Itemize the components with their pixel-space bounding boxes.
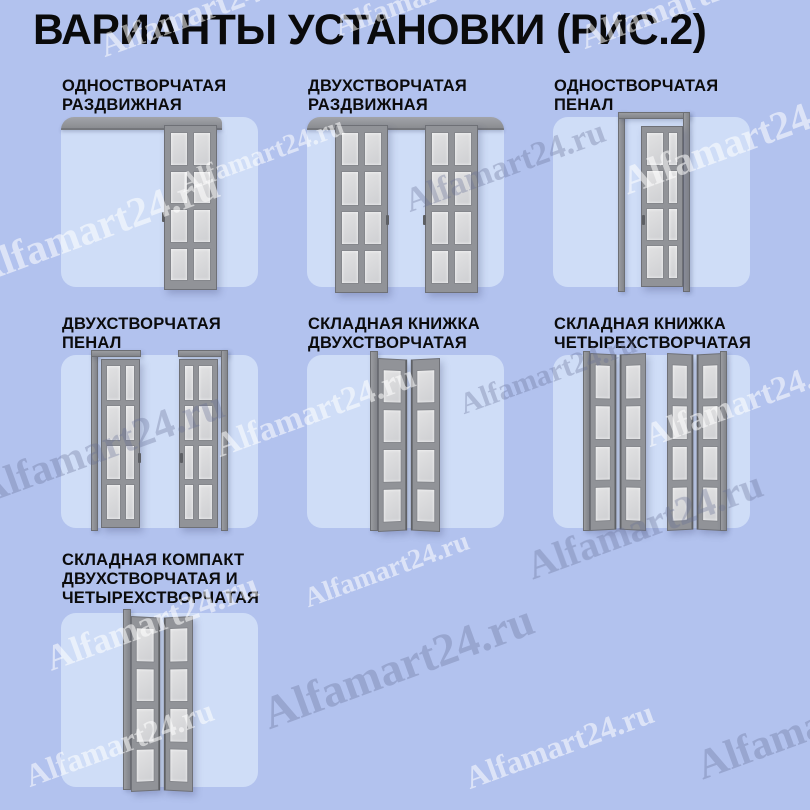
glass-pane xyxy=(595,446,611,481)
label-line: ДВУХСТВОРЧАТАЯ И xyxy=(62,570,259,589)
glass-pane xyxy=(169,748,188,783)
glass-pane xyxy=(431,171,449,205)
glass-pane xyxy=(646,170,664,204)
door-handle xyxy=(162,212,165,222)
door-leaf xyxy=(131,616,160,792)
glass-pane xyxy=(646,245,664,279)
glass-pane xyxy=(364,171,382,205)
page-title: ВАРИАНТЫ УСТАНОВКИ (РИС.2) xyxy=(33,6,706,55)
glass-pane xyxy=(416,409,435,443)
frame-post xyxy=(683,112,690,292)
glass-pane xyxy=(672,405,688,440)
glass-pane xyxy=(170,132,188,166)
glass-pane xyxy=(454,211,472,245)
glass-pane xyxy=(702,364,718,399)
glass-pane xyxy=(125,365,135,401)
door-leaf xyxy=(378,358,407,532)
glass-pane xyxy=(169,708,188,742)
glass-pane xyxy=(672,446,688,481)
bifold-pair xyxy=(378,358,440,532)
label-line: ДВУХСТВОРЧАТАЯ xyxy=(308,334,480,353)
door-leaf xyxy=(335,125,388,293)
watermark-text: Alfamart24.ru xyxy=(255,593,541,740)
glass-pane xyxy=(170,248,188,282)
glass-pane xyxy=(125,445,135,481)
bifold-pair xyxy=(667,353,723,531)
door-handle xyxy=(423,215,426,225)
label-double-sliding: ДВУХСТВОРЧАТАЯ РАЗДВИЖНАЯ xyxy=(308,77,467,115)
glass-pane xyxy=(125,484,135,520)
glass-pane xyxy=(702,405,718,440)
label-single-pocket: ОДНОСТВОРЧАТАЯ ПЕНАЛ xyxy=(554,77,718,115)
glass-pane xyxy=(431,250,449,284)
watermark-text: Alfamart24.ru xyxy=(300,526,474,615)
label-line: СКЛАДНАЯ КНИЖКА xyxy=(554,315,751,334)
frame-post xyxy=(370,351,378,531)
frame-post xyxy=(618,112,625,292)
glass-pane xyxy=(364,250,382,284)
glass-pane xyxy=(595,405,611,440)
glass-pane xyxy=(184,365,194,401)
door-illustration xyxy=(307,117,504,287)
glass-pane xyxy=(625,405,641,440)
glass-pane xyxy=(193,209,211,243)
frame-post xyxy=(123,609,131,790)
label-double-pocket: ДВУХСТВОРЧАТАЯ ПЕНАЛ xyxy=(62,315,221,353)
door-leaf xyxy=(667,353,693,531)
frame-post xyxy=(720,351,727,531)
glass-pane xyxy=(416,369,435,403)
glass-pane xyxy=(341,250,359,284)
glass-pane xyxy=(106,484,121,520)
panel-double-sliding xyxy=(307,117,504,287)
glass-pane xyxy=(625,486,641,521)
glass-pane xyxy=(169,668,188,702)
glass-pane xyxy=(383,369,402,403)
door-illustration xyxy=(307,355,504,528)
label-line: ОДНОСТВОРЧАТАЯ xyxy=(62,77,226,96)
glass-pane xyxy=(595,364,611,399)
door-illustration xyxy=(553,117,750,287)
label-line: СКЛАДНАЯ КОМПАКТ xyxy=(62,551,259,570)
frame-post xyxy=(91,350,98,531)
door-leaf xyxy=(590,353,616,531)
label-line: СКЛАДНАЯ КНИЖКА xyxy=(308,315,480,334)
glass-pane xyxy=(341,132,359,166)
glass-pane xyxy=(170,171,188,205)
glass-pane xyxy=(136,748,155,783)
glass-pane xyxy=(193,132,211,166)
label-folding-book-quad: СКЛАДНАЯ КНИЖКА ЧЕТЫРЕХСТВОРЧАТАЯ xyxy=(554,315,751,353)
glass-pane xyxy=(668,170,678,204)
glass-pane xyxy=(672,486,688,521)
door-illustration xyxy=(61,613,258,787)
glass-pane xyxy=(106,445,121,481)
glass-pane xyxy=(454,132,472,166)
glass-pane xyxy=(184,405,194,441)
glass-pane xyxy=(198,365,213,401)
glass-pane xyxy=(383,409,402,443)
glass-pane xyxy=(672,364,688,399)
door-handle xyxy=(386,215,389,225)
panel-single-sliding xyxy=(61,117,258,287)
glass-pane xyxy=(184,484,194,520)
door-leaf xyxy=(179,359,218,528)
door-leaf xyxy=(425,125,478,293)
glass-pane xyxy=(595,486,611,521)
glass-pane xyxy=(341,211,359,245)
glass-pane xyxy=(668,245,678,279)
label-line: РАЗДВИЖНАЯ xyxy=(62,96,226,115)
glass-pane xyxy=(646,208,664,242)
panel-folding-compact xyxy=(61,613,258,787)
frame-post xyxy=(583,351,590,531)
glass-pane xyxy=(416,449,435,483)
door-illustration xyxy=(61,117,258,287)
panel-folding-book-double xyxy=(307,355,504,528)
label-line: РАЗДВИЖНАЯ xyxy=(308,96,467,115)
label-line: ЧЕТЫРЕХСТВОРЧАТАЯ xyxy=(62,589,259,608)
glass-pane xyxy=(383,488,402,522)
door-handle xyxy=(642,215,645,225)
glass-pane xyxy=(646,132,664,166)
glass-pane xyxy=(668,208,678,242)
door-handle xyxy=(180,453,183,463)
label-folding-compact: СКЛАДНАЯ КОМПАКТ ДВУХСТВОРЧАТАЯ И ЧЕТЫРЕ… xyxy=(62,551,259,608)
door-illustration xyxy=(553,355,750,528)
door-leaf xyxy=(411,358,440,532)
glass-pane xyxy=(625,364,641,399)
glass-pane xyxy=(702,446,718,481)
glass-pane xyxy=(431,132,449,166)
label-line: ДВУХСТВОРЧАТАЯ xyxy=(308,77,467,96)
glass-pane xyxy=(106,405,121,441)
glass-pane xyxy=(198,445,213,481)
bifold-pair xyxy=(590,353,646,531)
glass-pane xyxy=(136,627,155,662)
label-single-sliding: ОДНОСТВОРЧАТАЯ РАЗДВИЖНАЯ xyxy=(62,77,226,115)
glass-pane xyxy=(198,405,213,441)
glass-pane xyxy=(454,171,472,205)
watermark-text: Alfamart24.ru xyxy=(690,656,810,790)
label-line: ЧЕТЫРЕХСТВОРЧАТАЯ xyxy=(554,334,751,353)
glass-pane xyxy=(193,248,211,282)
glass-pane xyxy=(341,171,359,205)
label-folding-book-double: СКЛАДНАЯ КНИЖКА ДВУХСТВОРЧАТАЯ xyxy=(308,315,480,353)
label-line: ОДНОСТВОРЧАТАЯ xyxy=(554,77,718,96)
glass-pane xyxy=(383,449,402,483)
label-line: ПЕНАЛ xyxy=(62,334,221,353)
panel-folding-book-quad xyxy=(553,355,750,528)
glass-pane xyxy=(136,708,155,742)
glass-pane xyxy=(416,488,435,522)
door-leaf xyxy=(641,126,683,287)
glass-pane xyxy=(668,132,678,166)
glass-pane xyxy=(170,209,188,243)
panel-double-pocket xyxy=(61,355,258,528)
glass-pane xyxy=(364,132,382,166)
door-illustration xyxy=(61,355,258,528)
frame-post xyxy=(221,350,228,531)
glass-pane xyxy=(431,211,449,245)
door-handle xyxy=(138,453,141,463)
glass-pane xyxy=(198,484,213,520)
glass-pane xyxy=(169,627,188,662)
glass-pane xyxy=(625,446,641,481)
door-leaf xyxy=(164,125,217,290)
glass-pane xyxy=(454,250,472,284)
label-line: ПЕНАЛ xyxy=(554,96,718,115)
door-leaf xyxy=(164,616,193,792)
label-line: ДВУХСТВОРЧАТАЯ xyxy=(62,315,221,334)
glass-pane xyxy=(193,171,211,205)
door-leaf xyxy=(620,353,646,531)
panel-single-pocket xyxy=(553,117,750,287)
door-leaf xyxy=(101,359,140,528)
glass-pane xyxy=(106,365,121,401)
bifold-pair xyxy=(131,616,193,792)
glass-pane xyxy=(364,211,382,245)
glass-pane xyxy=(702,486,718,521)
glass-pane xyxy=(125,405,135,441)
glass-pane xyxy=(136,668,155,702)
watermark-text: Alfamart24.ru xyxy=(460,694,659,797)
glass-pane xyxy=(184,445,194,481)
